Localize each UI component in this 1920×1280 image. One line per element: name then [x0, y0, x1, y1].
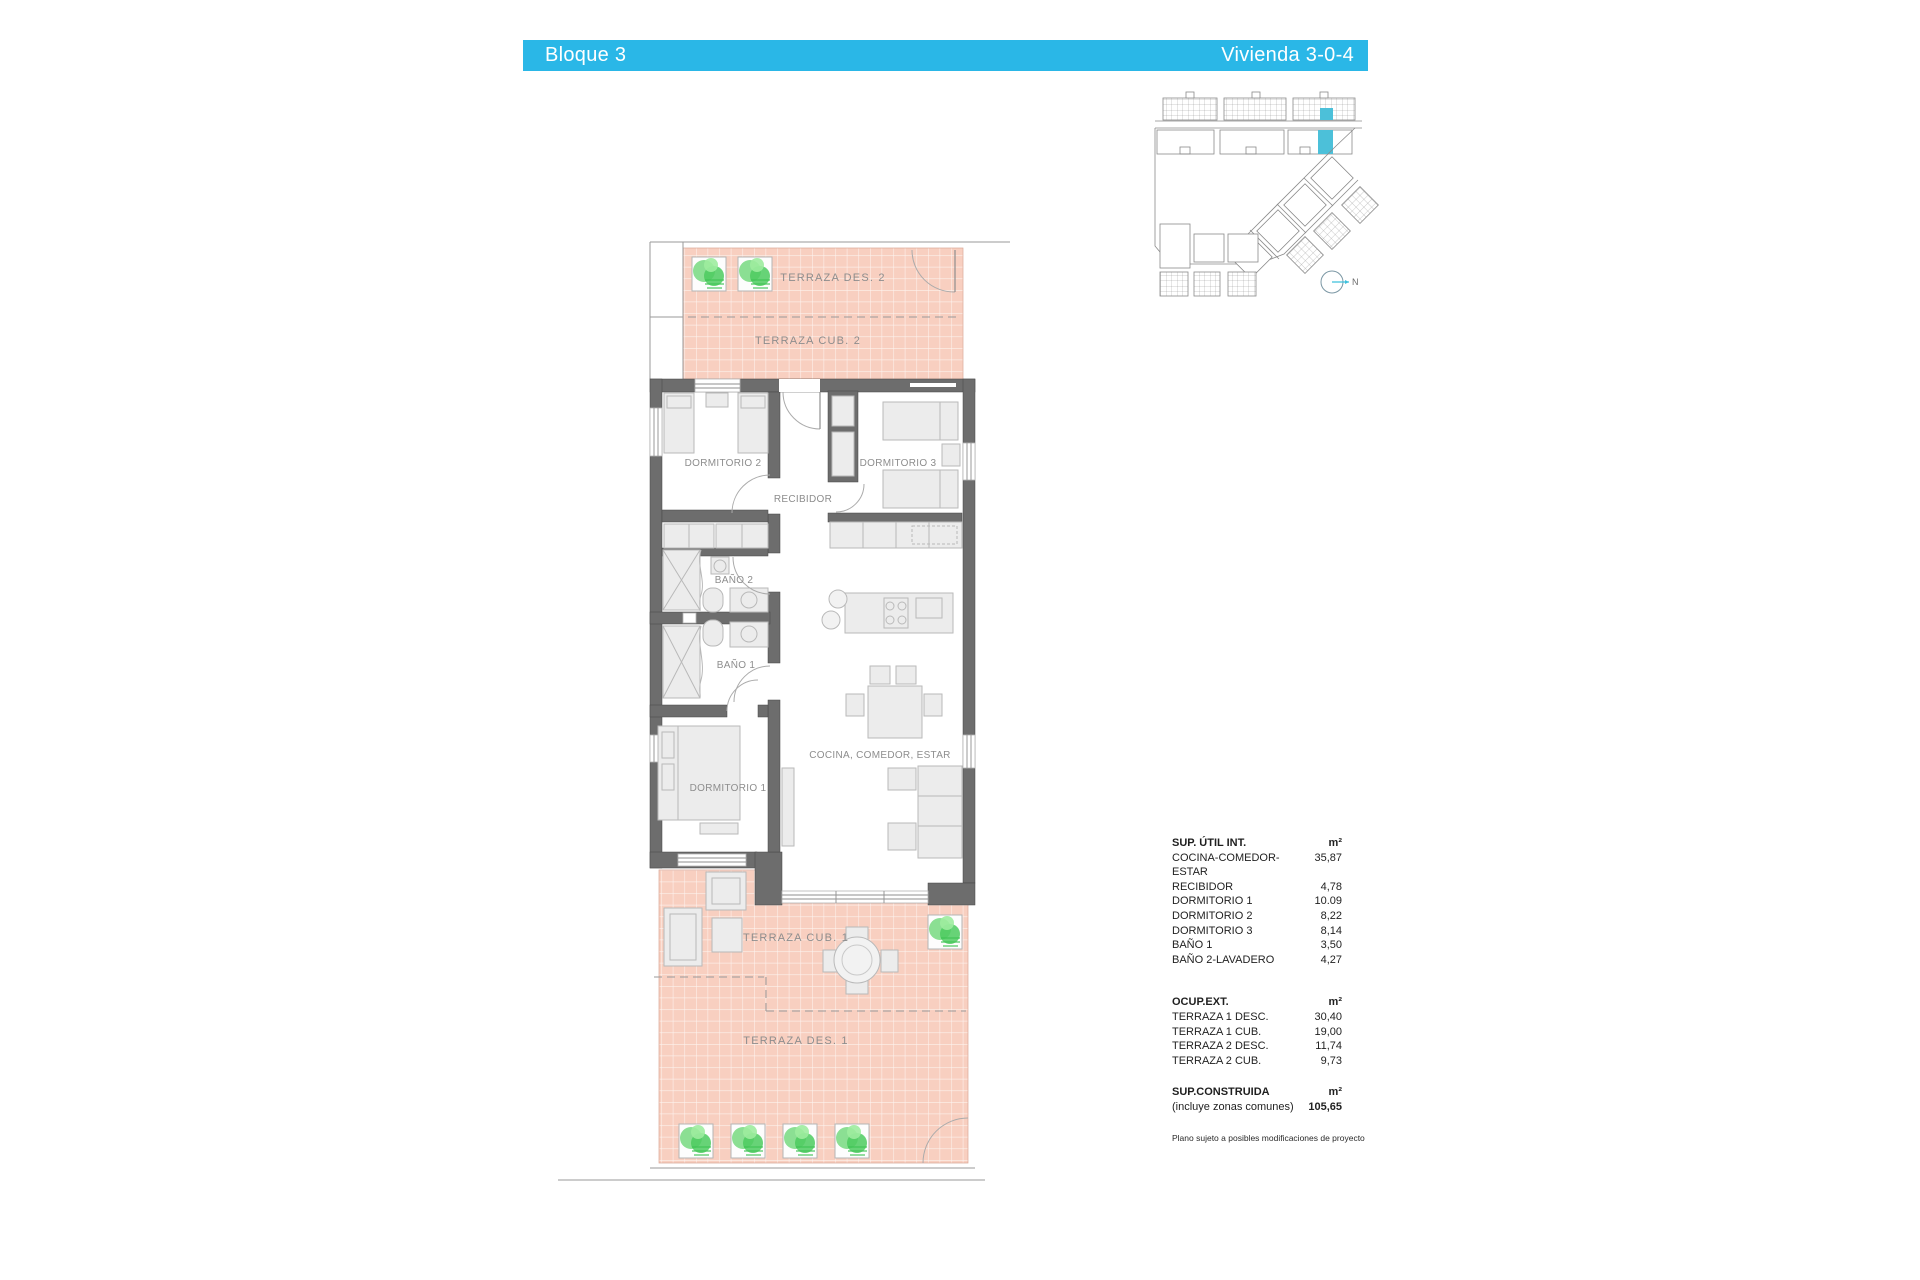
floorplan-svg: TERRAZA DES. 2 TERRAZA CUB. 2 DORMITORIO…	[0, 0, 1920, 1280]
table-row: TERRAZA 2 DESC. 11,74	[1172, 1039, 1342, 1054]
row-label: TERRAZA 2 DESC.	[1172, 1039, 1269, 1054]
row-value: 9,73	[1321, 1054, 1342, 1069]
table-row: (incluye zonas comunes) 105,65	[1172, 1100, 1342, 1115]
row-label: DORMITORIO 2	[1172, 909, 1252, 924]
north-label: N	[1352, 277, 1359, 287]
outdoor-table	[712, 918, 742, 952]
table-row: COCINA-COMEDOR-ESTAR 35,87	[1172, 851, 1342, 880]
plant-icon	[783, 1124, 817, 1158]
north-arrow-icon: N	[1321, 271, 1359, 293]
closet	[832, 396, 854, 426]
table-row: TERRAZA 1 CUB. 19,00	[1172, 1025, 1342, 1040]
terrace-1	[654, 870, 968, 1163]
row-value: 4,27	[1321, 953, 1342, 968]
row-label: BAÑO 2-LAVADERO	[1172, 953, 1274, 968]
kitchen-island	[845, 593, 953, 633]
label-terraza-cub-1: TERRAZA CUB. 1	[743, 932, 849, 944]
sofa	[888, 766, 962, 858]
label-recibidor: RECIBIDOR	[774, 494, 832, 505]
ext-title: OCUP.EXT.	[1172, 995, 1229, 1010]
table-section-ext: OCUP.EXT. m² TERRAZA 1 DESC. 30,40 TERRA…	[1172, 995, 1342, 1068]
util-title: SUP. ÚTIL INT.	[1172, 836, 1246, 851]
stool	[829, 590, 847, 608]
plant-icon	[835, 1124, 869, 1158]
row-label: DORMITORIO 3	[1172, 924, 1252, 939]
ext-unit: m²	[1329, 995, 1342, 1010]
row-label: TERRAZA 2 CUB.	[1172, 1054, 1261, 1069]
dining-set	[846, 666, 942, 738]
row-label: DORMITORIO 1	[1172, 894, 1252, 909]
built-unit: m²	[1329, 1085, 1342, 1100]
table-row: BAÑO 2-LAVADERO 4,27	[1172, 953, 1342, 968]
table-row: BAÑO 1 3,50	[1172, 938, 1342, 953]
label-bano-2: BAÑO 2	[715, 573, 754, 586]
area-table: SUP. ÚTIL INT. m² COCINA-COMEDOR-ESTAR 3…	[1172, 836, 1342, 1145]
plant-icon	[738, 257, 772, 291]
disclaimer-note: Plano sujeto a posibles modificaciones d…	[1172, 1131, 1342, 1146]
row-label: BAÑO 1	[1172, 938, 1212, 953]
closet	[832, 432, 854, 476]
built-subtitle: (incluye zonas comunes)	[1172, 1100, 1294, 1115]
plant-icon	[692, 257, 726, 291]
page: TERRAZA DES. 2 TERRAZA CUB. 2 DORMITORIO…	[0, 0, 1920, 1280]
label-terraza-des-1: TERRAZA DES. 1	[743, 1035, 848, 1047]
block-title: Bloque 3	[545, 44, 626, 67]
row-label: RECIBIDOR	[1172, 880, 1233, 895]
terrace-2	[650, 242, 963, 379]
tv-unit	[782, 768, 794, 846]
label-dormitorio-1: DORMITORIO 1	[690, 783, 767, 794]
row-value: 35,87	[1314, 851, 1342, 880]
plant-icon	[679, 1124, 713, 1158]
built-title: SUP.CONSTRUIDA	[1172, 1085, 1270, 1100]
unit-title: Vivienda 3-0-4	[1221, 44, 1354, 67]
bed	[883, 402, 958, 440]
table-section-util: SUP. ÚTIL INT. m² COCINA-COMEDOR-ESTAR 3…	[1172, 836, 1342, 967]
row-value: 30,40	[1314, 1010, 1342, 1025]
table-row: DORMITORIO 1 10.09	[1172, 894, 1342, 909]
table-row: DORMITORIO 2 8,22	[1172, 909, 1342, 924]
highlighted-unit	[1318, 130, 1333, 154]
plant-icon	[928, 915, 962, 949]
label-terraza-des-2: TERRAZA DES. 2	[780, 272, 885, 284]
stool	[822, 611, 840, 629]
util-unit: m²	[1329, 836, 1342, 851]
title-bar: Bloque 3 Vivienda 3-0-4	[523, 40, 1368, 71]
row-value: 10.09	[1314, 894, 1342, 909]
label-dormitorio-3: DORMITORIO 3	[860, 458, 937, 469]
label-cocina: COCINA, COMEDOR, ESTAR	[809, 750, 950, 761]
built-value: 105,65	[1308, 1100, 1342, 1115]
row-value: 3,50	[1321, 938, 1342, 953]
nightstand	[706, 393, 728, 407]
row-label: TERRAZA 1 DESC.	[1172, 1010, 1269, 1025]
row-label: COCINA-COMEDOR-ESTAR	[1172, 851, 1314, 880]
label-dormitorio-2: DORMITORIO 2	[685, 458, 762, 469]
bed	[738, 393, 768, 453]
row-label: TERRAZA 1 CUB.	[1172, 1025, 1261, 1040]
double-bed	[658, 726, 740, 820]
row-value: 8,14	[1321, 924, 1342, 939]
table-row: DORMITORIO 3 8,14	[1172, 924, 1342, 939]
nightstand	[942, 444, 960, 466]
bed	[883, 470, 958, 508]
row-value: 11,74	[1315, 1039, 1342, 1054]
table-section-built: SUP.CONSTRUIDA m² (incluye zonas comunes…	[1172, 1085, 1342, 1114]
bed	[664, 393, 694, 453]
bench	[700, 823, 738, 834]
label-bano-1: BAÑO 1	[717, 658, 756, 671]
row-value: 4,78	[1321, 880, 1342, 895]
table-row: TERRAZA 2 CUB. 9,73	[1172, 1054, 1342, 1069]
label-terraza-cub-2: TERRAZA CUB. 2	[755, 335, 861, 347]
plant-icon	[731, 1124, 765, 1158]
table-row: TERRAZA 1 DESC. 30,40	[1172, 1010, 1342, 1025]
site-plan: N	[1155, 92, 1378, 296]
row-value: 19,00	[1314, 1025, 1342, 1040]
table-row: RECIBIDOR 4,78	[1172, 880, 1342, 895]
highlighted-unit-roof	[1320, 108, 1333, 120]
row-value: 8,22	[1321, 909, 1342, 924]
bathroom1-fixtures	[663, 620, 768, 698]
kitchen	[822, 522, 962, 633]
